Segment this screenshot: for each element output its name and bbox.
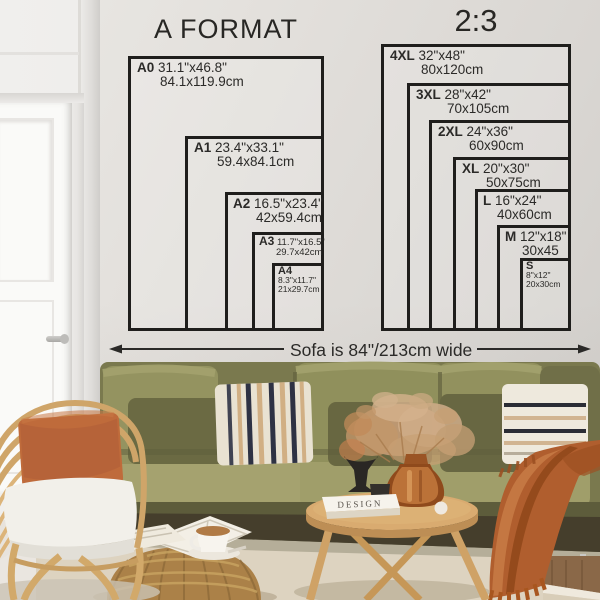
- svg-text:DESIGN: DESIGN: [337, 498, 382, 510]
